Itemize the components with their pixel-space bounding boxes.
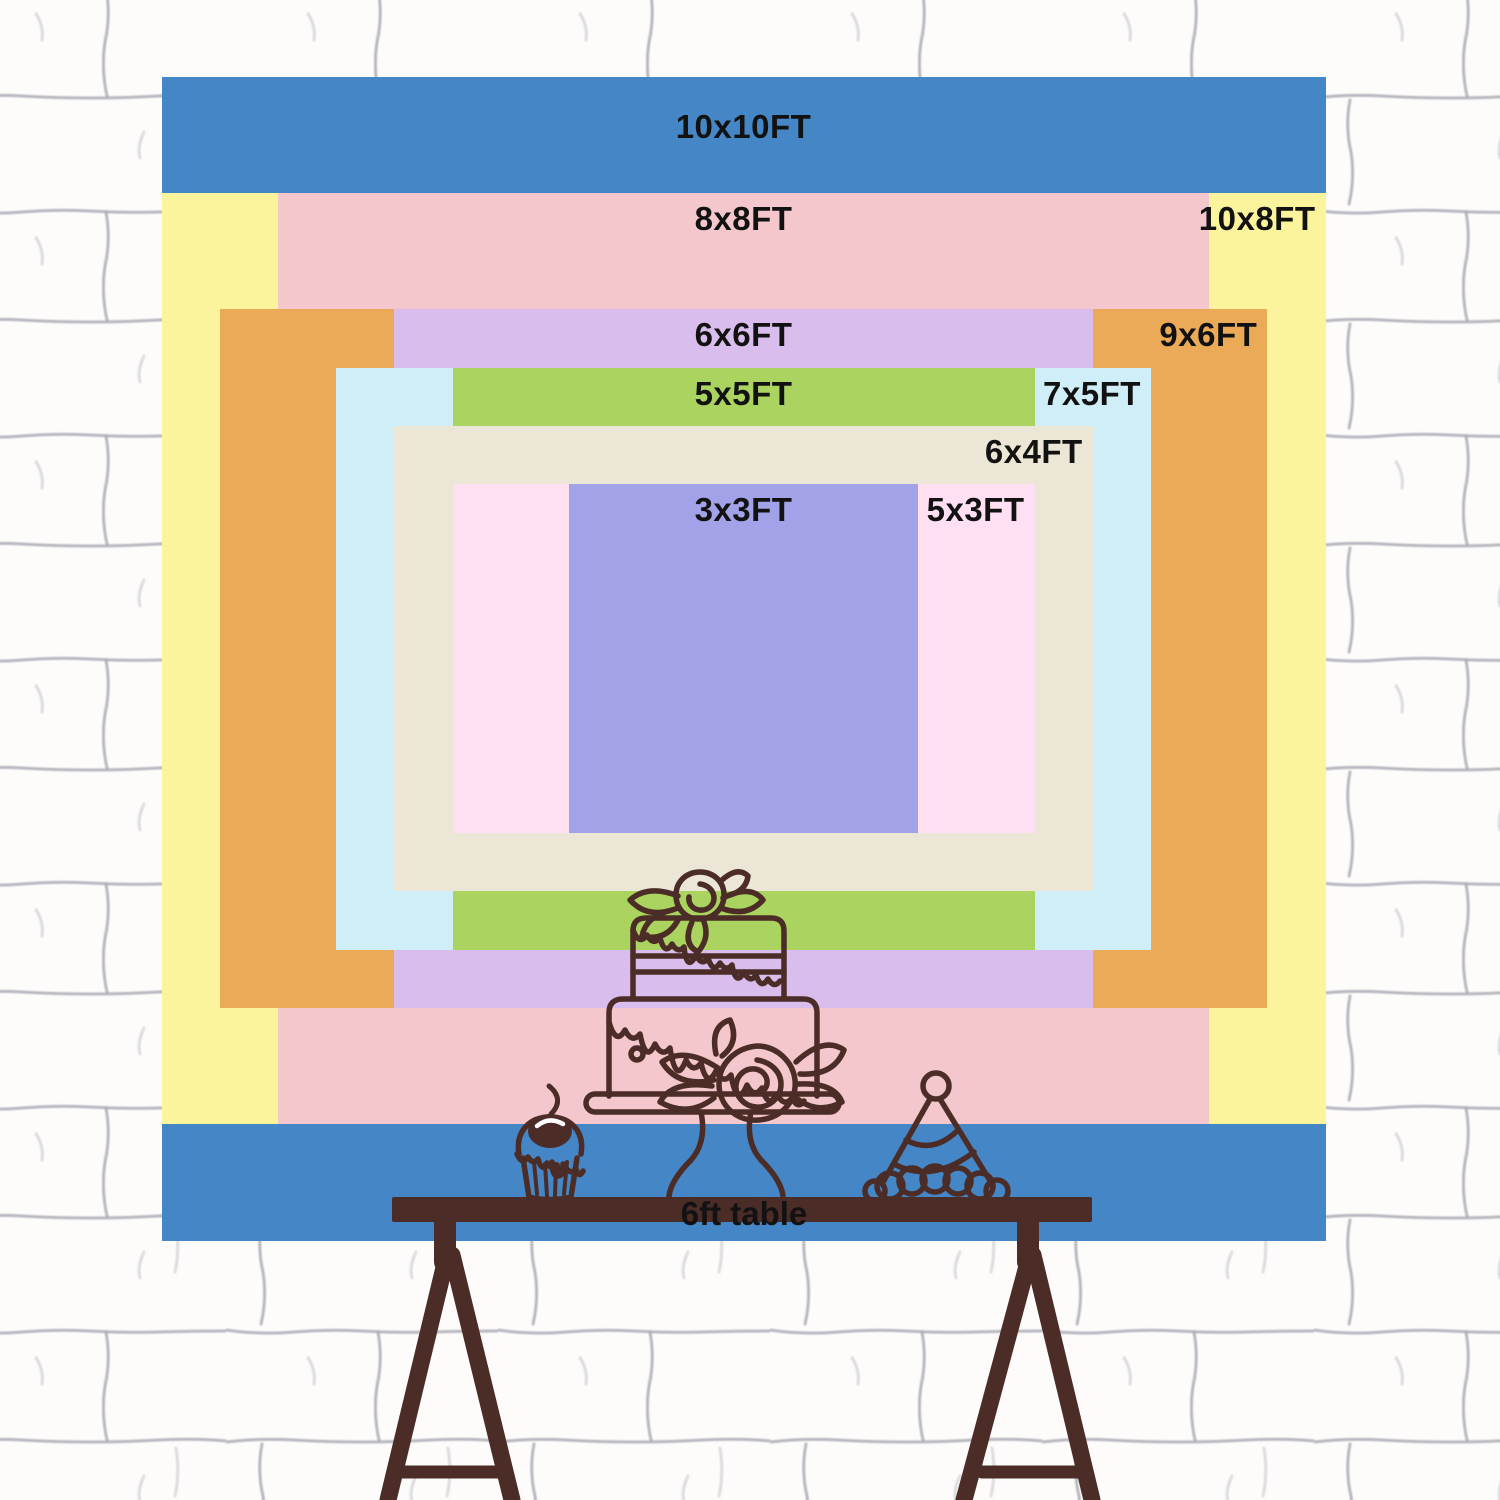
table-size-label: 6ft table: [681, 1194, 808, 1234]
illustration-layer: [0, 0, 1500, 1500]
party-hat-illustration: [865, 1073, 1008, 1202]
birthday-cake-illustration: [586, 872, 844, 1204]
backdrop-size-chart: 10x10FT10x8FT8x8FT9x6FT6x6FT7x5FT5x5FT6x…: [0, 0, 1500, 1500]
table-illustration: [388, 1197, 1092, 1500]
cherry-stem: [549, 1086, 558, 1114]
cupcake-illustration: [517, 1086, 583, 1200]
